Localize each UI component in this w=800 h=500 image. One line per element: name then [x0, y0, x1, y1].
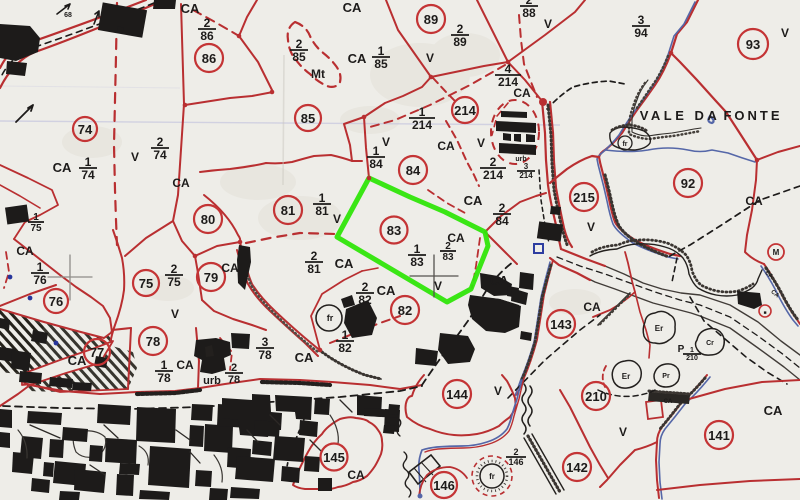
svg-text:CA: CA	[447, 231, 465, 245]
svg-text:CA: CA	[68, 353, 87, 368]
svg-text:CA: CA	[347, 468, 365, 482]
svg-text:81: 81	[307, 262, 321, 276]
svg-text:CA: CA	[53, 160, 72, 175]
svg-text:1: 1	[690, 347, 694, 354]
svg-text:3: 3	[262, 335, 269, 349]
svg-text:V: V	[382, 135, 390, 149]
svg-text:143: 143	[550, 317, 572, 332]
svg-text:V: V	[333, 212, 341, 226]
svg-text:V: V	[544, 17, 552, 31]
svg-text:2: 2	[490, 155, 497, 169]
svg-text:142: 142	[566, 460, 588, 475]
svg-text:CA: CA	[513, 86, 531, 100]
svg-text:77: 77	[90, 345, 104, 360]
svg-text:2: 2	[362, 280, 369, 294]
svg-text:83: 83	[387, 223, 401, 238]
svg-text:89: 89	[424, 12, 438, 27]
svg-text:145: 145	[323, 450, 345, 465]
svg-text:85: 85	[292, 50, 306, 64]
svg-text:75: 75	[139, 276, 153, 291]
svg-text:Pr: Pr	[662, 373, 670, 380]
svg-text:75: 75	[167, 275, 181, 289]
svg-text:3: 3	[524, 162, 529, 171]
svg-text:76: 76	[49, 294, 63, 309]
svg-text:3: 3	[638, 13, 645, 27]
svg-text:83: 83	[442, 252, 454, 263]
svg-text:82: 82	[338, 341, 352, 355]
svg-text:85: 85	[301, 111, 315, 126]
svg-text:CA: CA	[348, 51, 367, 66]
svg-text:88: 88	[522, 6, 536, 20]
svg-text:82: 82	[398, 303, 412, 318]
svg-text:fr: fr	[622, 141, 627, 148]
svg-text:74: 74	[153, 148, 167, 162]
svg-text:CA: CA	[181, 1, 200, 16]
svg-text:2: 2	[157, 135, 164, 149]
svg-text:78: 78	[146, 334, 160, 349]
svg-text:146: 146	[508, 457, 523, 467]
svg-text:Er: Er	[655, 324, 663, 333]
svg-text:FONTE: FONTE	[723, 108, 782, 123]
svg-text:81: 81	[281, 203, 295, 218]
svg-text:74: 74	[78, 122, 93, 137]
svg-text:84: 84	[369, 157, 383, 171]
svg-text:214: 214	[454, 103, 476, 118]
svg-text:214: 214	[519, 171, 533, 180]
svg-text:1: 1	[319, 191, 326, 205]
svg-text:84: 84	[406, 163, 421, 178]
svg-text:1: 1	[378, 44, 385, 58]
svg-text:P: P	[678, 344, 685, 355]
svg-text:80: 80	[201, 212, 215, 227]
svg-text:1: 1	[414, 242, 421, 256]
svg-text:V: V	[494, 384, 502, 398]
svg-text:1: 1	[373, 144, 380, 158]
svg-text:146: 146	[433, 478, 455, 493]
svg-text:CA: CA	[583, 300, 601, 314]
svg-text:M: M	[773, 248, 780, 257]
svg-text:CA: CA	[343, 0, 362, 15]
svg-text:68: 68	[64, 12, 72, 19]
svg-text:CA: CA	[335, 256, 354, 271]
svg-text:CA: CA	[745, 194, 763, 208]
svg-text:82: 82	[358, 293, 372, 307]
svg-text:76: 76	[33, 273, 47, 287]
svg-text:144: 144	[446, 387, 468, 402]
svg-text:Mt: Mt	[311, 67, 325, 81]
svg-text:CA: CA	[176, 358, 194, 372]
svg-text:V: V	[171, 307, 179, 321]
svg-text:CA: CA	[464, 193, 483, 208]
svg-text:2: 2	[171, 262, 178, 276]
svg-text:215: 215	[573, 190, 595, 205]
svg-text:CA: CA	[437, 139, 455, 153]
svg-text:75: 75	[30, 223, 42, 234]
svg-text:81: 81	[315, 204, 329, 218]
svg-text:89: 89	[453, 35, 467, 49]
svg-text:fr: fr	[489, 472, 495, 481]
svg-text:2: 2	[513, 447, 518, 457]
svg-text:urb: urb	[515, 156, 526, 163]
svg-text:74: 74	[81, 168, 95, 182]
svg-text:78: 78	[258, 348, 272, 362]
svg-text:V: V	[131, 150, 139, 164]
svg-text:urb: urb	[203, 375, 221, 387]
svg-text:1: 1	[419, 105, 426, 119]
svg-text:V: V	[434, 279, 442, 293]
svg-text:93: 93	[746, 37, 760, 52]
svg-text:CA: CA	[764, 403, 783, 418]
svg-text:2: 2	[457, 22, 464, 36]
svg-text:fr: fr	[327, 313, 334, 323]
svg-text:CA: CA	[16, 244, 34, 258]
svg-text:78: 78	[228, 374, 240, 386]
svg-text:CA: CA	[377, 283, 396, 298]
svg-text:■: ■	[763, 310, 766, 316]
svg-text:141: 141	[708, 428, 730, 443]
svg-text:83: 83	[410, 255, 424, 269]
svg-text:84: 84	[495, 214, 509, 228]
svg-text:86: 86	[200, 29, 214, 43]
svg-text:2: 2	[311, 249, 318, 263]
svg-text:Er: Er	[622, 372, 630, 381]
svg-text:2: 2	[204, 16, 211, 30]
svg-text:V: V	[781, 26, 789, 40]
svg-text:210: 210	[585, 389, 607, 404]
svg-text:CA: CA	[172, 176, 190, 190]
svg-text:214: 214	[483, 168, 503, 182]
svg-text:1: 1	[161, 358, 168, 372]
svg-text:92: 92	[681, 176, 695, 191]
svg-text:85: 85	[374, 57, 388, 71]
svg-text:78: 78	[157, 371, 171, 385]
svg-text:V: V	[426, 51, 434, 65]
svg-text:2: 2	[296, 37, 303, 51]
svg-text:210: 210	[686, 355, 698, 362]
svg-text:V: V	[477, 136, 485, 150]
svg-text:CA: CA	[664, 399, 673, 405]
svg-text:94: 94	[634, 26, 648, 40]
svg-text:2: 2	[499, 201, 506, 215]
svg-text:1: 1	[85, 155, 92, 169]
svg-text:79: 79	[204, 270, 218, 285]
svg-text:Cr: Cr	[706, 340, 714, 347]
svg-text:5: 5	[385, 419, 390, 429]
svg-text:CA: CA	[295, 350, 314, 365]
svg-text:V: V	[619, 425, 627, 439]
svg-text:86: 86	[202, 51, 216, 66]
svg-text:VALE DA: VALE DA	[640, 108, 721, 123]
svg-text:1: 1	[37, 260, 44, 274]
svg-text:CA: CA	[490, 273, 509, 288]
svg-text:V: V	[587, 220, 595, 234]
svg-text:1: 1	[342, 328, 349, 342]
svg-text:CA: CA	[221, 261, 239, 275]
svg-text:214: 214	[412, 118, 432, 132]
